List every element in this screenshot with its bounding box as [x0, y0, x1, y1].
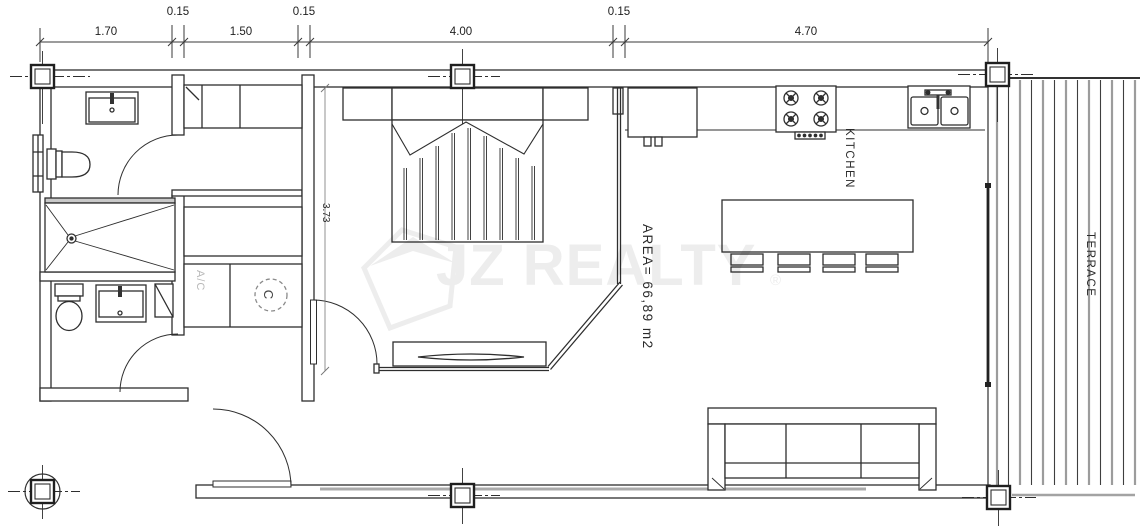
dim-label-2: 0.15	[158, 6, 198, 18]
nightstand-right	[543, 88, 588, 120]
bathroom1-fixtures	[45, 92, 175, 272]
vanity-sink2	[96, 285, 146, 322]
column-marker-bubble	[8, 465, 80, 519]
bedroom-door-arc	[313, 300, 377, 364]
kitchen-fixtures	[625, 86, 985, 272]
dim-label-7: 4.70	[766, 26, 846, 38]
dim-label-6: 0.15	[599, 6, 639, 18]
stove	[776, 86, 836, 139]
area-label: AREA= 66,89 m2	[640, 224, 655, 350]
toilet	[47, 149, 90, 179]
headboard	[392, 88, 543, 120]
sofa	[708, 408, 936, 490]
bathroom2-fixtures	[55, 284, 173, 331]
bay-glass	[548, 282, 623, 370]
bedroom-window	[377, 368, 549, 371]
toilet2	[55, 284, 83, 331]
entrance-door-leaf	[213, 481, 291, 487]
room-label-kitchen: KITCHEN	[843, 128, 855, 189]
bathroom2-door-arc	[120, 334, 178, 392]
terrace-deck	[997, 78, 1140, 495]
floor-plan-drawing	[0, 0, 1146, 532]
kitchen-island	[722, 200, 913, 272]
shower	[45, 198, 175, 272]
bathroom1-door-arc	[118, 135, 178, 195]
floor-plan: 1.70 0.15 1.50 0.15 4.00 0.15 4.70 3.73 …	[0, 0, 1146, 532]
stools	[731, 254, 898, 272]
dim-label-3: 1.50	[201, 26, 281, 38]
ac-label: A/C	[194, 270, 206, 291]
dim-label-side: 3.73	[320, 203, 331, 222]
bedroom-door-leaf	[311, 300, 317, 364]
fridge	[628, 88, 697, 146]
dim-label-5: 4.00	[421, 26, 501, 38]
entrance-door-arc	[213, 409, 291, 487]
dresser-tv	[393, 342, 546, 366]
bedroom-partition-glass	[618, 88, 621, 284]
cabinet	[155, 284, 173, 317]
vanity-sink	[86, 92, 138, 124]
nightstand-left	[343, 88, 392, 120]
room-label-terrace: TERRACE	[1084, 232, 1096, 297]
bedroom-furniture	[343, 88, 588, 366]
dim-label-1: 1.70	[66, 26, 146, 38]
bed	[392, 120, 543, 242]
heater-label: C	[261, 290, 276, 299]
dim-label-4: 0.15	[284, 6, 324, 18]
double-sink	[908, 86, 970, 128]
